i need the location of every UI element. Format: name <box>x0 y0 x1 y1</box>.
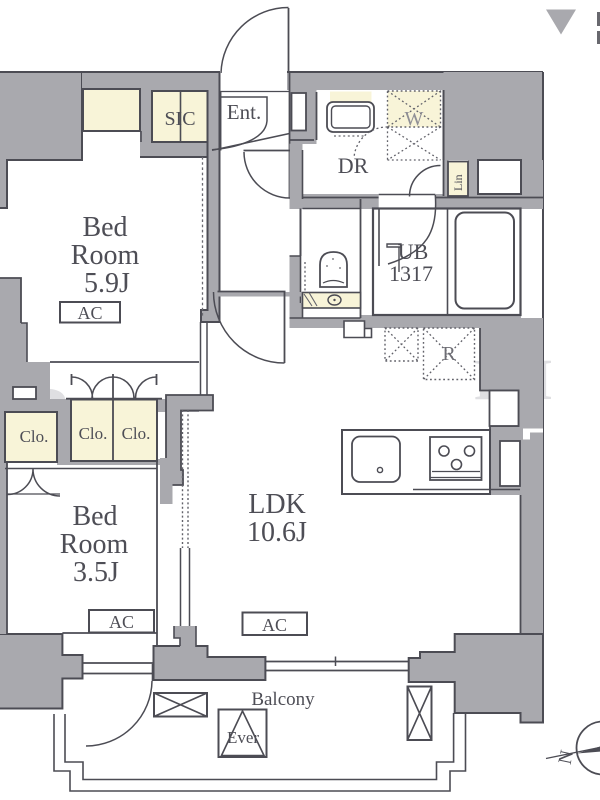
svg-text:Ent.: Ent. <box>227 100 261 124</box>
svg-text:R: R <box>442 343 456 365</box>
svg-text:Clo.: Clo. <box>79 424 108 443</box>
svg-text:Lin: Lin <box>451 174 465 191</box>
svg-text:Room: Room <box>71 240 140 271</box>
svg-text:Room: Room <box>60 529 129 560</box>
svg-text:AC: AC <box>109 612 134 632</box>
svg-text:Bed: Bed <box>82 212 127 243</box>
svg-text:Ever: Ever <box>227 728 259 747</box>
svg-text:DR: DR <box>338 153 369 178</box>
svg-text:AC: AC <box>262 615 287 635</box>
svg-text:5.9J: 5.9J <box>84 268 130 299</box>
svg-text:W: W <box>405 108 424 130</box>
svg-text:Bed: Bed <box>72 501 117 532</box>
svg-text:Clo.: Clo. <box>20 427 49 446</box>
svg-text:10.6J: 10.6J <box>247 517 307 548</box>
svg-text:Balcony: Balcony <box>251 689 315 710</box>
svg-text:AC: AC <box>77 303 102 323</box>
svg-text:3.5J: 3.5J <box>73 557 119 588</box>
svg-text:LDK: LDK <box>248 489 306 520</box>
svg-text:1317: 1317 <box>389 261 433 286</box>
svg-text:SIC: SIC <box>164 108 195 130</box>
svg-text:Clo.: Clo. <box>122 424 151 443</box>
